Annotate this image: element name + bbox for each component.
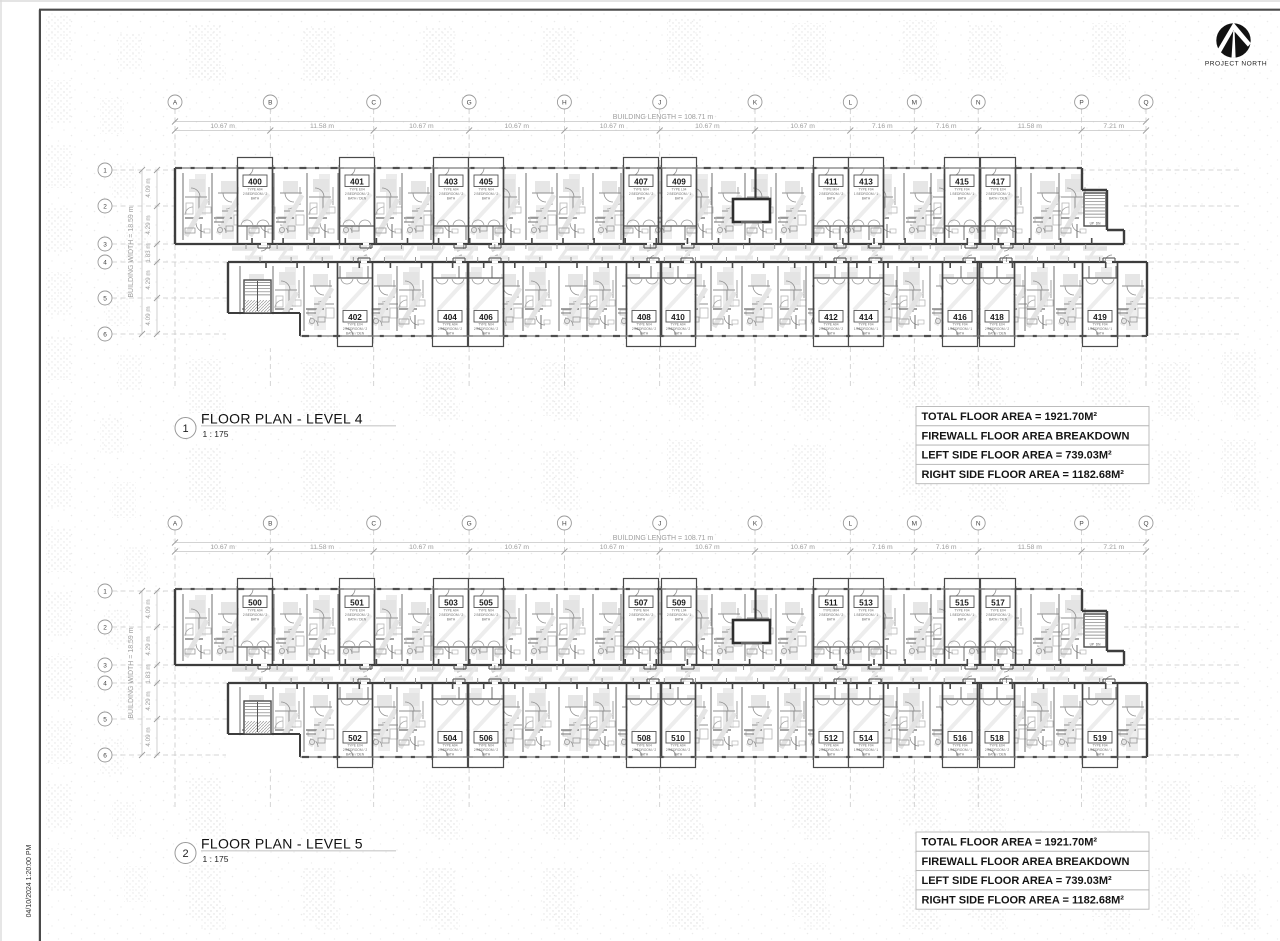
svg-text:RIGHT SIDE FLOOR AREA = 1182.6: RIGHT SIDE FLOOR AREA = 1182.68M² [922,469,1125,481]
svg-text:405: 405 [479,177,493,186]
svg-text:1: 1 [182,423,188,435]
svg-text:500: 500 [248,598,262,607]
svg-text:502: 502 [348,734,362,743]
svg-text:400: 400 [248,177,262,186]
svg-text:504: 504 [443,734,457,743]
svg-text:511: 511 [824,598,838,607]
svg-text:417: 417 [991,177,1005,186]
svg-text:2: 2 [182,848,188,860]
svg-text:419: 419 [1093,313,1107,322]
svg-text:TOTAL FLOOR AREA = 1921.70M²: TOTAL FLOOR AREA = 1921.70M² [922,837,1098,849]
svg-text:FIREWALL FLOOR AREA BREAKDOWN: FIREWALL FLOOR AREA BREAKDOWN [922,430,1130,442]
svg-text:1 : 175: 1 : 175 [203,429,229,439]
svg-text:515: 515 [955,598,969,607]
svg-text:1 : 175: 1 : 175 [203,854,229,864]
svg-text:411: 411 [824,177,838,186]
svg-text:408: 408 [637,313,651,322]
svg-text:FLOOR PLAN - LEVEL 5: FLOOR PLAN - LEVEL 5 [201,836,363,852]
svg-text:PROJECT NORTH: PROJECT NORTH [1205,61,1267,68]
svg-text:401: 401 [350,177,364,186]
svg-text:517: 517 [991,598,1005,607]
svg-text:FLOOR PLAN - LEVEL 4: FLOOR PLAN - LEVEL 4 [201,411,363,427]
svg-text:506: 506 [479,734,493,743]
svg-text:413: 413 [859,177,873,186]
svg-text:412: 412 [824,313,838,322]
svg-text:519: 519 [1093,734,1107,743]
svg-text:FIREWALL FLOOR AREA BREAKDOWN: FIREWALL FLOOR AREA BREAKDOWN [922,856,1130,868]
svg-text:516: 516 [953,734,967,743]
svg-text:403: 403 [444,177,458,186]
svg-text:LEFT SIDE FLOOR AREA = 739.03M: LEFT SIDE FLOOR AREA = 739.03M² [922,875,1113,887]
svg-text:404: 404 [443,313,457,322]
svg-text:501: 501 [350,598,364,607]
svg-text:518: 518 [990,734,1004,743]
svg-text:TOTAL FLOOR AREA = 1921.70M²: TOTAL FLOOR AREA = 1921.70M² [922,411,1098,423]
svg-text:513: 513 [859,598,873,607]
svg-text:416: 416 [953,313,967,322]
svg-text:406: 406 [479,313,493,322]
svg-text:508: 508 [637,734,651,743]
svg-text:414: 414 [859,313,873,322]
svg-text:407: 407 [634,177,648,186]
svg-text:LEFT SIDE FLOOR AREA = 739.03M: LEFT SIDE FLOOR AREA = 739.03M² [922,450,1113,462]
svg-text:514: 514 [859,734,873,743]
svg-text:509: 509 [672,598,686,607]
svg-text:418: 418 [990,313,1004,322]
svg-text:415: 415 [955,177,969,186]
svg-text:512: 512 [824,734,838,743]
svg-text:505: 505 [479,598,493,607]
svg-text:510: 510 [671,734,685,743]
svg-text:402: 402 [348,313,362,322]
svg-text:RIGHT SIDE FLOOR AREA = 1182.6: RIGHT SIDE FLOOR AREA = 1182.68M² [922,895,1125,907]
svg-text:503: 503 [444,598,458,607]
svg-text:410: 410 [671,313,685,322]
svg-text:04/10/2024 1:20:00 PM: 04/10/2024 1:20:00 PM [26,844,33,917]
svg-text:409: 409 [672,177,686,186]
svg-text:507: 507 [634,598,648,607]
